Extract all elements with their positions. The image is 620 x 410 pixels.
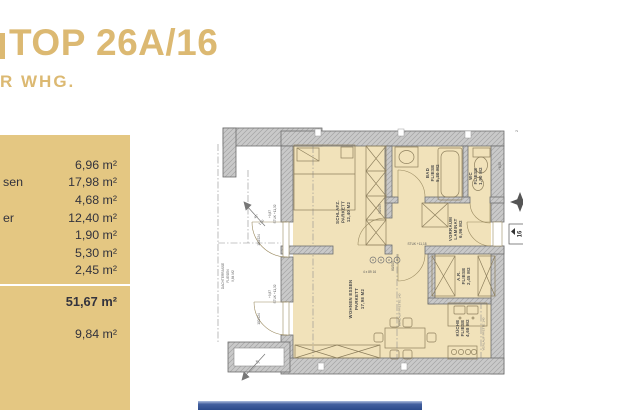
room-label-wc-area: 1,90 M2 [478, 167, 483, 185]
level-stuk-3: STUK +11,18 [408, 242, 427, 246]
slope-arrow-head-2 [242, 372, 249, 380]
area-row-value: 6,96 m² [75, 158, 117, 172]
dim-vorraum-door: 80/205 [391, 261, 395, 271]
area-row-value: 1,90 m² [75, 228, 117, 242]
page-subtitle: R WHG. [0, 72, 75, 92]
terrace-door-2 [283, 302, 289, 335]
wall-right-lower [491, 246, 504, 374]
area-row: sen17,98 m² [0, 174, 117, 192]
room-label-wohnen-floor: PARKETT [354, 288, 359, 310]
total-area-value: 51,67 m² [66, 294, 117, 309]
wall-mid-b [425, 246, 504, 254]
area-row: er12,40 m² [0, 209, 117, 227]
wall-bad-wc [463, 146, 468, 197]
dim-terrace-door-1: 100/224 [257, 234, 261, 246]
room-label-terrasse-name: DACHTERRASSE [221, 263, 225, 289]
area-row-value: 5,30 m² [75, 246, 117, 260]
area-row-value: 17,98 m² [68, 175, 117, 189]
room-label-schlaf-area: 12,40 M2 [346, 202, 351, 223]
room-label-schlaf-floor: PARKETT [341, 201, 346, 223]
area-row: 2,45 m² [0, 262, 117, 280]
wall-left-a [281, 146, 293, 222]
room-label-wohnen-area: 17,98 M2 [360, 289, 365, 310]
area-row: 1,90 m² [0, 226, 117, 244]
wall-schlaf-bad-b [385, 245, 392, 254]
level-2: +9,87 [268, 290, 272, 298]
wall-right-upper [491, 146, 504, 222]
entry-door [493, 222, 502, 246]
room-label-wohnen-name: WOHNEN ESSEN [348, 280, 353, 319]
wall-terrace-left [223, 128, 236, 177]
room-label-schlaf-name: SCHLAFZ. [335, 200, 340, 224]
slope-arrow-head-1 [244, 202, 251, 210]
footer-bar [198, 401, 422, 410]
wall-bad-bottom-c [490, 197, 504, 203]
area-row-value: 2,45 m² [75, 263, 117, 277]
area-row-label: sen [0, 175, 23, 189]
entry-marker: 16 [509, 224, 523, 244]
wall-left-b [281, 257, 293, 302]
purlin-label-2: VERLAUF PFETTE 140 [482, 317, 486, 350]
level-stuk-2: STUK +11,32 [273, 284, 277, 303]
north-arrow-icon [510, 192, 523, 212]
level-1: +9,87 [268, 210, 272, 218]
terrace-area-value: 9,84 m² [75, 327, 117, 341]
wall-bad-bottom-a [385, 197, 398, 203]
wall-ar-left [428, 254, 435, 304]
area-row: 6,96 m² [0, 156, 117, 174]
steps-label: 4 x 89 16 [363, 270, 376, 274]
area-row: 4,68 m² [0, 191, 117, 209]
room-label-vorraum-area: 6,96 M2 [458, 220, 463, 238]
floor-plan: 4 x 89 16 45° 1,50 45° SCHLAFZ. PARKETT … [213, 114, 523, 395]
room-label-terrasse-area: 9,84 M2 [231, 270, 235, 282]
area-row-label: er [0, 211, 14, 225]
level-stuk-1: STUK +11,32 [273, 204, 277, 223]
page-title: TOP 26A/16 [9, 22, 218, 64]
page: { "header": { "title": "TOP 26A/16", "su… [0, 0, 620, 410]
title-cropped-fragment [0, 33, 5, 59]
area-row: 5,30 m² [0, 244, 117, 262]
room-label-ar-area: 2,45 M2 [466, 267, 471, 285]
panel-divider [0, 284, 130, 286]
area-row-value: 4,68 m² [75, 193, 117, 207]
wall-bottom [281, 358, 504, 374]
axis-label: 2 [515, 130, 519, 132]
purlin-label-1: VERLAUF PFETTE 140 [398, 293, 402, 326]
area-summary-panel: 6,96 m² sen17,98 m² 4,68 m² er12,40 m² 1… [0, 135, 130, 410]
area-row-value: 12,40 m² [68, 211, 117, 225]
area-rows: 6,96 m² sen17,98 m² 4,68 m² er12,40 m² 1… [0, 156, 117, 279]
dim-schlaf-door: 90/205 [378, 204, 382, 214]
room-label-kueche-area: 4,68 M2 [465, 319, 470, 337]
room-label-bad-area: 5,30 M2 [435, 164, 440, 182]
level-3: +8,50 [498, 162, 502, 170]
dim-terrace-door-2: 100/224 [257, 313, 261, 325]
terrace-door-1 [283, 222, 289, 257]
entry-unit-number: 16 [518, 230, 523, 237]
room-label-terrasse-floor: FLIESEN [226, 269, 230, 283]
